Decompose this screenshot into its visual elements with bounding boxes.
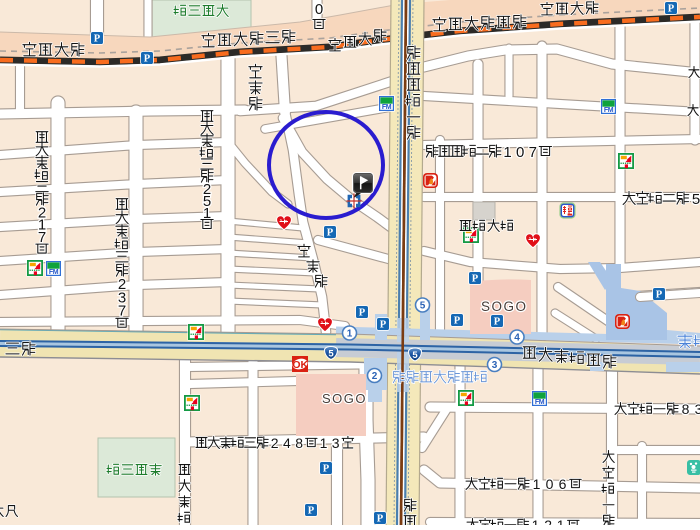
svg-text:1: 1 (503, 144, 511, 161)
svg-text:0: 0 (546, 476, 554, 492)
svg-text:1: 1 (533, 476, 541, 492)
svg-text:6: 6 (559, 476, 567, 492)
svg-text:4: 4 (514, 333, 520, 344)
svg-text:P: P (94, 34, 101, 45)
svg-text:8: 8 (295, 435, 303, 451)
svg-text:P: P (323, 464, 330, 475)
svg-text:OK: OK (292, 359, 308, 371)
svg-text:FM: FM (49, 269, 59, 276)
svg-text:SOGO: SOGO (322, 391, 367, 406)
svg-text:5: 5 (412, 350, 418, 361)
svg-text:P: P (380, 320, 387, 331)
svg-text:3: 3 (332, 435, 340, 451)
svg-text:0: 0 (516, 144, 524, 161)
svg-text:SOGO: SOGO (481, 299, 528, 314)
svg-text:1: 1 (532, 517, 540, 525)
svg-text:5: 5 (692, 191, 700, 208)
svg-text:2: 2 (271, 435, 279, 451)
svg-text:1: 1 (320, 435, 328, 451)
svg-text:7: 7 (118, 303, 126, 320)
svg-text:4: 4 (283, 435, 291, 451)
svg-text:P: P (494, 317, 501, 328)
svg-text:1: 1 (557, 517, 565, 525)
svg-text:P: P (144, 54, 151, 65)
svg-text:P: P (656, 290, 663, 301)
svg-text:P: P (308, 506, 315, 517)
svg-text:P: P (454, 316, 461, 327)
svg-text:3: 3 (695, 401, 700, 417)
svg-text:0: 0 (315, 1, 323, 18)
svg-text:1: 1 (347, 329, 353, 340)
svg-text:FM: FM (382, 104, 392, 111)
svg-text:2: 2 (372, 371, 378, 382)
svg-text:P: P (472, 274, 479, 285)
svg-text:7: 7 (529, 144, 537, 161)
svg-text:FM: FM (535, 399, 545, 406)
svg-text:P: P (668, 4, 675, 15)
svg-text:P: P (359, 308, 366, 319)
svg-text:5: 5 (420, 301, 426, 312)
svg-text:P: P (377, 514, 384, 525)
svg-text:3: 3 (492, 360, 498, 371)
svg-text:FM: FM (604, 107, 614, 114)
svg-text:8: 8 (682, 401, 690, 417)
svg-text:2: 2 (544, 517, 552, 525)
svg-text:P: P (327, 228, 334, 239)
svg-text:5: 5 (328, 348, 334, 359)
